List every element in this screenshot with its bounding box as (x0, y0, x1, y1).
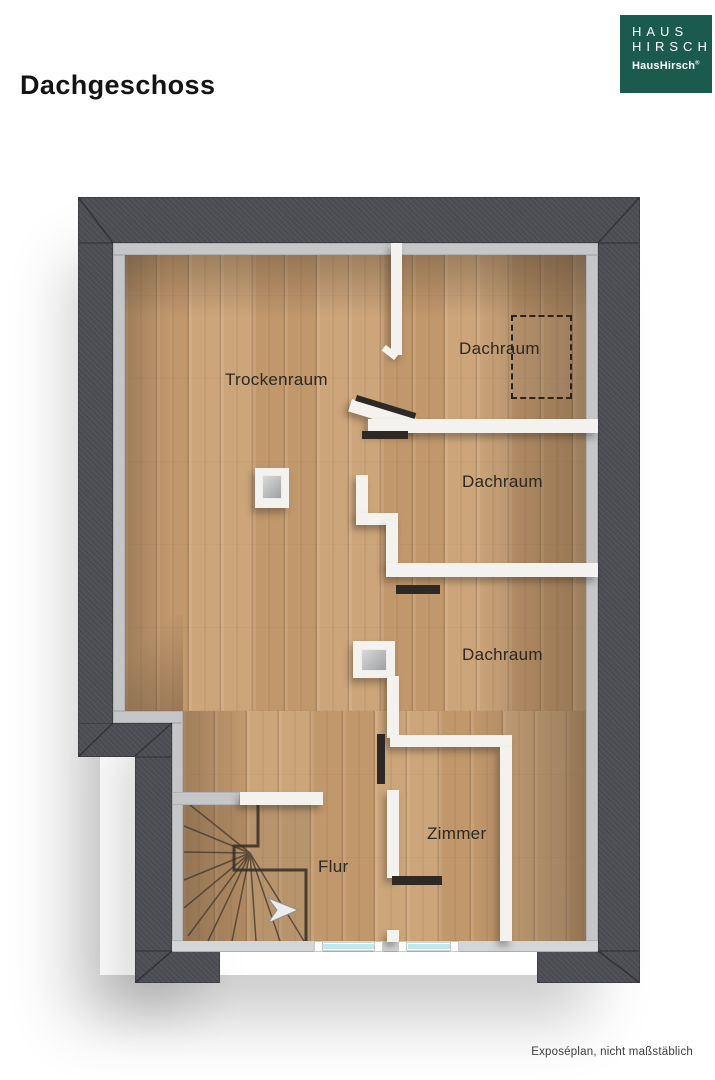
wall-segment (390, 735, 512, 747)
wall-segment (356, 475, 368, 517)
stairs-and-seams-layer (0, 0, 715, 1080)
wall-segment (172, 792, 240, 805)
door-leaf (377, 734, 385, 784)
footer-note: Exposéplan, nicht maßstäblich (531, 1046, 693, 1058)
window-glass (321, 943, 378, 950)
wall-segment (391, 243, 402, 355)
door-leaf (396, 585, 440, 594)
wall-segment (387, 676, 399, 738)
room-label-dachraum-mitte: Dachraum (462, 472, 543, 492)
wall-segment (386, 521, 398, 567)
wall-segment (500, 747, 512, 941)
wall-segment (387, 790, 399, 878)
chimney-flue (262, 475, 282, 499)
room-label-zimmer: Zimmer (427, 824, 486, 844)
room-label-trockenraum: Trockenraum (225, 370, 328, 390)
room-label-dachraum-oben: Dachraum (459, 339, 540, 359)
chimney-flue (361, 649, 387, 671)
wall-segment (386, 563, 598, 577)
wall-segment (240, 792, 323, 805)
door-leaf (362, 431, 408, 439)
room-label-flur: Flur (318, 857, 348, 877)
window-frame (398, 941, 407, 952)
door-leaf (392, 876, 442, 885)
room-label-dachraum-unten: Dachraum (462, 645, 543, 665)
window-glass (407, 943, 453, 950)
exposé-floor-plan-page: Dachgeschoss HAUS HIRSCH HausHirsch® (0, 0, 715, 1080)
window-frame (314, 941, 323, 952)
window-frame (450, 941, 459, 952)
stair-direction-arrow-icon (268, 898, 298, 923)
window-frame (374, 941, 383, 952)
